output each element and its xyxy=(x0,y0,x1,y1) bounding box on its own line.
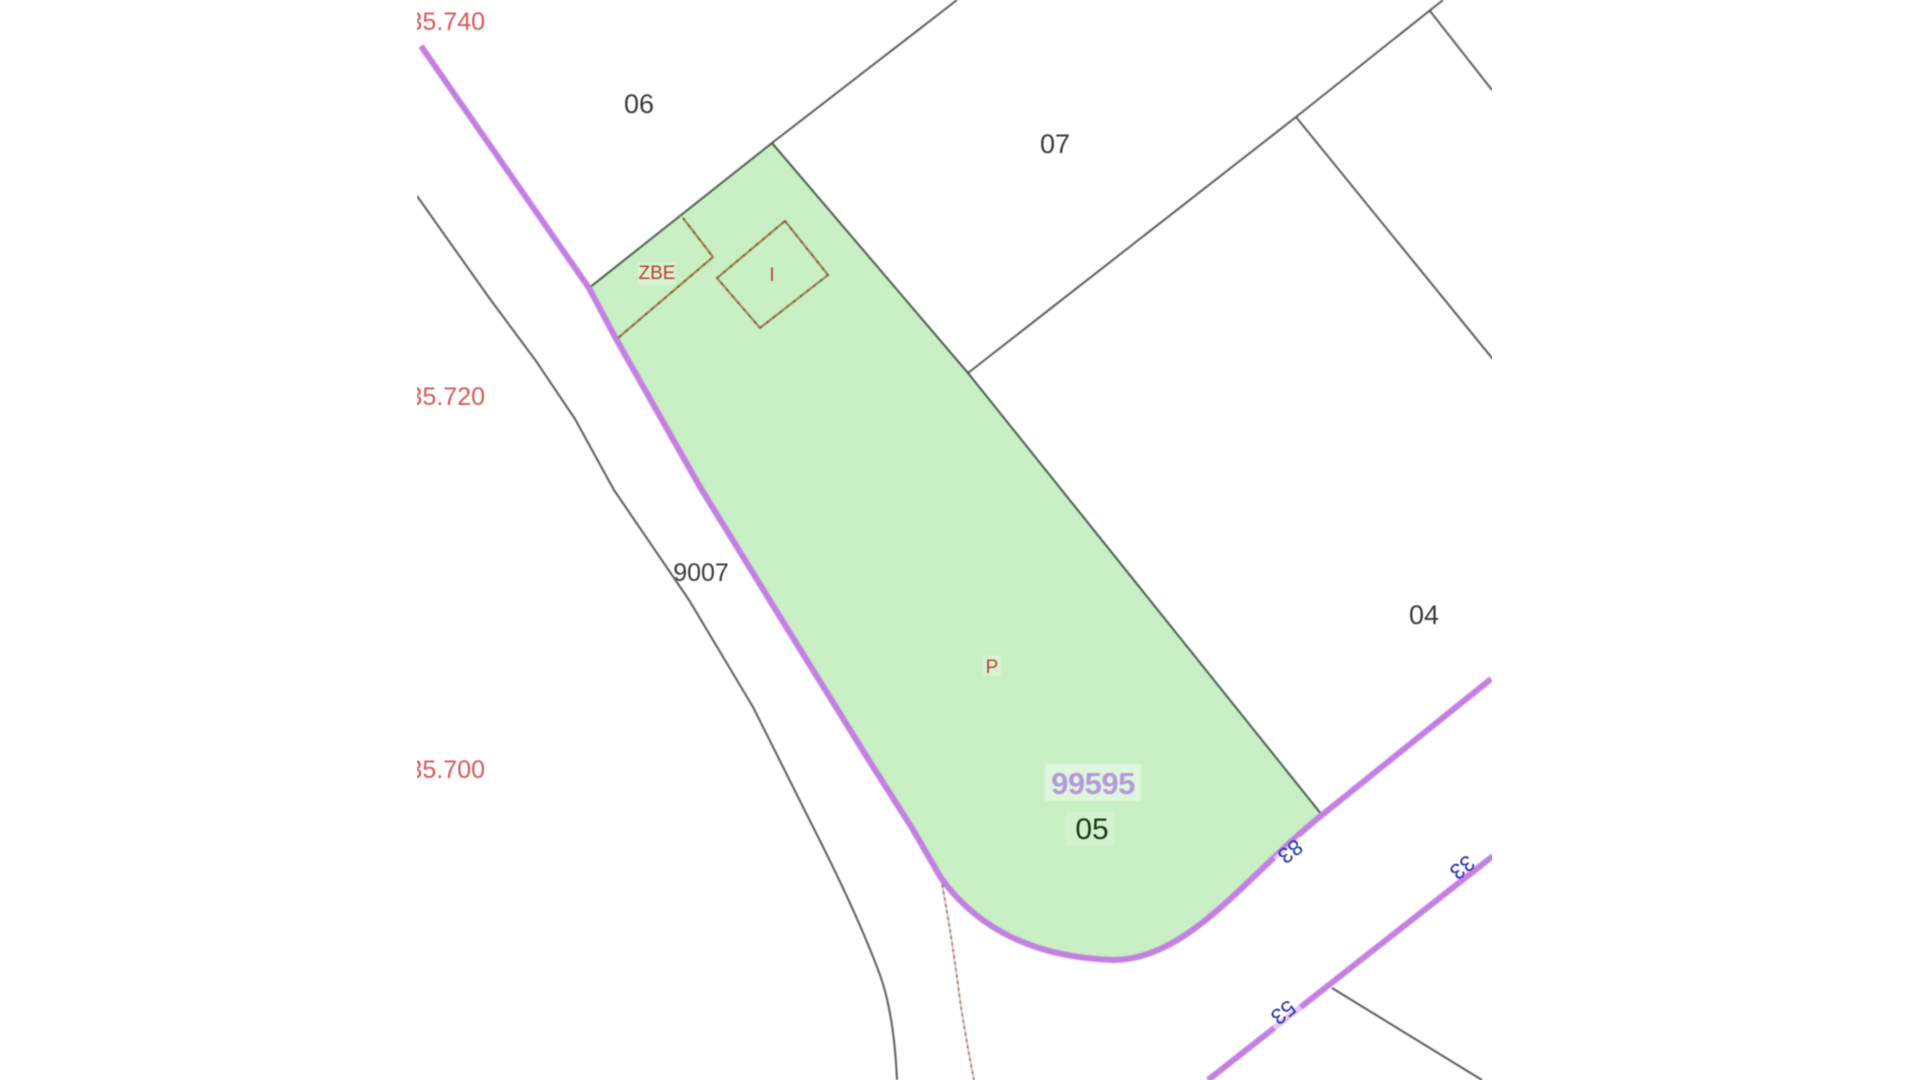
svg-text:04: 04 xyxy=(1409,600,1439,630)
svg-text:05: 05 xyxy=(1075,813,1108,846)
svg-text:99595: 99595 xyxy=(1051,766,1135,801)
svg-text:33: 33 xyxy=(1445,850,1480,885)
svg-text:I: I xyxy=(769,265,774,286)
svg-text:9007: 9007 xyxy=(673,559,729,587)
svg-text:06: 06 xyxy=(624,89,654,119)
svg-text:35.740: 35.740 xyxy=(417,8,485,36)
svg-text:35.700: 35.700 xyxy=(417,756,485,784)
svg-text:07: 07 xyxy=(1040,129,1070,159)
svg-text:P: P xyxy=(986,657,999,678)
svg-text:ZBE: ZBE xyxy=(639,263,676,284)
svg-text:35.720: 35.720 xyxy=(417,383,485,411)
